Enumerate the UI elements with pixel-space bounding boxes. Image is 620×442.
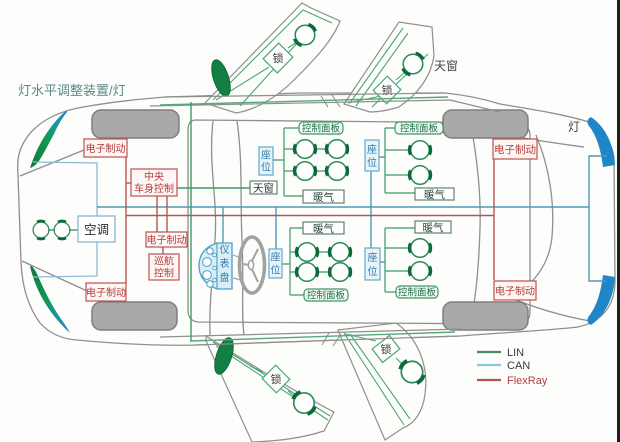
svg-text:电子制动: 电子制动 [86,142,126,155]
svg-text:暖气: 暖气 [423,221,444,234]
svg-text:车身控制: 车身控制 [134,182,174,195]
svg-text:电子制动: 电子制动 [494,143,536,156]
svg-text:灯水平调整装置/灯: 灯水平调整装置/灯 [18,83,126,98]
svg-text:控制: 控制 [154,267,174,280]
svg-text:电子制动: 电子制动 [495,285,535,298]
svg-text:CAN: CAN [507,360,530,372]
svg-text:控制面板: 控制面板 [307,290,346,302]
svg-text:空调: 空调 [84,223,109,237]
svg-text:控制面板: 控制面板 [398,287,437,299]
svg-text:位: 位 [261,161,271,174]
svg-text:控制面板: 控制面板 [400,123,439,135]
svg-text:座: 座 [261,149,271,162]
svg-text:暖气: 暖气 [424,188,445,201]
svg-text:表: 表 [220,257,230,270]
svg-text:控制面板: 控制面板 [302,123,341,135]
svg-text:座: 座 [368,251,378,264]
svg-text:中央: 中央 [144,170,164,183]
svg-text:天窗: 天窗 [434,59,458,73]
svg-text:电子制动: 电子制动 [86,286,126,299]
svg-text:盘: 盘 [220,271,230,284]
svg-text:FlexRay: FlexRay [507,375,548,387]
svg-text:位: 位 [271,264,281,277]
svg-text:仪: 仪 [220,244,230,256]
svg-text:天窗: 天窗 [253,182,274,195]
svg-text:锁: 锁 [382,83,393,97]
svg-text:位: 位 [367,156,377,169]
svg-text:暖气: 暖气 [313,191,334,204]
svg-text:锁: 锁 [381,342,392,356]
svg-text:座: 座 [271,251,281,264]
svg-text:暖气: 暖气 [313,222,334,235]
svg-text:电子制动: 电子制动 [147,234,187,247]
svg-text:位: 位 [368,265,378,278]
svg-text:LIN: LIN [507,347,524,359]
svg-text:灯: 灯 [568,120,580,134]
svg-text:巡航: 巡航 [154,255,174,268]
svg-text:锁: 锁 [271,372,282,386]
svg-text:锁: 锁 [273,51,284,65]
svg-text:座: 座 [367,143,377,156]
